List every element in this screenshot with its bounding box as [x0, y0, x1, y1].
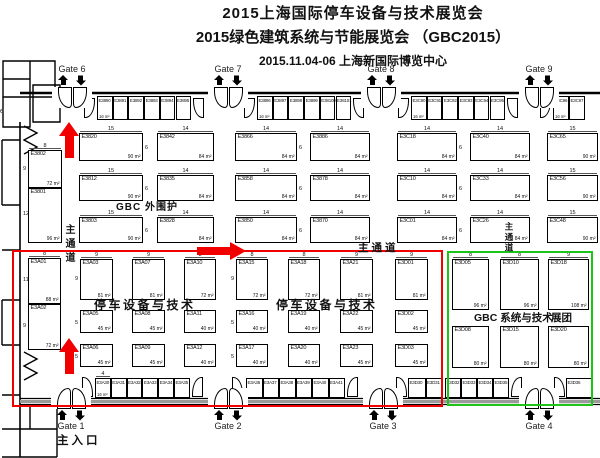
booth-id: E3893 [146, 98, 158, 103]
red-right-arrow-icon [197, 242, 246, 260]
edge-cutoff-text: e [0, 108, 4, 115]
booth-id: E3D33 [463, 380, 476, 385]
booth-E3803: E380390 m²156 [79, 217, 143, 243]
booth-E3D01: E3D0181 m²9 [395, 259, 428, 300]
booth-area: 45 m² [413, 326, 426, 332]
booth-id: E3894 [161, 98, 173, 103]
booth-id: E3898 [290, 98, 302, 103]
booth-E3886: E388684 m²14 [310, 133, 370, 161]
booth-area: 84 m² [442, 236, 455, 242]
booth-E3C94: E3C94 [474, 96, 490, 120]
booth-area: 80 m² [574, 361, 587, 367]
booth-dim-right: 6 [145, 228, 148, 234]
booth-area: 81 m² [413, 293, 426, 299]
booth-E3A31: E3A31 [111, 378, 127, 398]
gate-doors-icon [51, 388, 91, 409]
booth-id: E3D30 [410, 380, 423, 385]
booth-E3894: E3894 [160, 96, 176, 120]
booth-area: 45 m² [98, 326, 111, 332]
gate-doors-icon [208, 87, 248, 108]
booth-E3828: E382884 m²14 [157, 217, 214, 243]
booth-id: E3870 [313, 218, 328, 224]
booth-id: E3C40 [473, 134, 489, 140]
booth-area: 108 m² [571, 303, 587, 309]
booth-id: E3895 [177, 98, 189, 103]
booth-id: E3A32 [128, 380, 141, 385]
exhibition-title-line2: 2015绿色建筑系统与节能展览会 （GBC2015） [110, 26, 596, 47]
booth-area: 96 m² [47, 236, 60, 242]
gate-label: Gate 3 [351, 421, 415, 431]
booth-id: E3A17 [239, 345, 255, 351]
booth-id: E3C33 [473, 176, 489, 182]
booth-E3D15: E3D1580 m² [500, 326, 539, 368]
booth-E3A37: E3A37 [263, 378, 280, 398]
booth-E3D20: E3D2080 m² [548, 326, 589, 368]
gate-gate-1: Gate 1 [39, 387, 103, 431]
booth-area: 84 m² [282, 236, 295, 242]
booth-id: E3858 [238, 176, 253, 182]
gate-label: Gate 2 [196, 421, 260, 431]
booth-id: E3812 [82, 176, 97, 182]
booth-E3D32: E3D32 [445, 378, 461, 398]
booth-E3842: E384284 m²14 [157, 133, 214, 161]
booth-area: 84 m² [442, 154, 455, 160]
booth-E3C92: E3C92 [442, 96, 458, 120]
booth-id: E3D05 [455, 260, 471, 266]
booth-E3850: E385084 m²146 [235, 217, 297, 243]
booth-area: 84 m² [442, 194, 455, 200]
gate-gate-4: Gate 4 [507, 387, 571, 431]
gate-label: Gate 7 [196, 64, 260, 74]
booth-id: E3D31 [427, 380, 440, 385]
booth-area: 72 m² [253, 293, 266, 299]
booth-id: E3A30 [97, 380, 110, 385]
booth-dim-left: 5 [231, 320, 234, 326]
booth-E3D03: E3D0345 m² [395, 344, 428, 367]
gate-label: Gate 1 [39, 421, 103, 431]
down-arrow-icon [386, 410, 397, 421]
booth-E38100: E38100 [320, 96, 336, 120]
booth-E3D05: E3D0596 m²8 [452, 259, 489, 310]
booth-id: E3899 [306, 98, 318, 103]
booth-area: 45 m² [150, 360, 163, 366]
gate-gate-6: Gate 6 [40, 64, 104, 108]
booth-id: E3A07 [135, 260, 151, 266]
main-aisle-label-vertical: 主通道 [61, 224, 76, 266]
up-arrow-icon [214, 410, 225, 421]
booth-dim-left: 11 [23, 277, 29, 283]
booth-id: E3803 [82, 218, 97, 224]
booth-area: 88 m² [46, 297, 59, 303]
booth-area: 96 m² [474, 303, 487, 309]
booth-id: E3897 [274, 98, 286, 103]
down-arrow-icon [542, 75, 553, 86]
booth-area: 72 m² [201, 293, 214, 299]
booth-E3866: E386684 m²146 [235, 133, 297, 161]
booth-dim-left: 9 [75, 276, 78, 282]
booth-dim-left: 9 [23, 323, 26, 329]
booth-E3858: E385884 m²146 [235, 175, 297, 201]
down-arrow-icon [231, 410, 242, 421]
down-arrow-icon [74, 410, 85, 421]
booth-E3891: E3891 [113, 96, 129, 120]
booth-E3A39: E3A39 [296, 378, 313, 398]
booth-E3C65: E3C6590 m²15 [547, 133, 598, 161]
booth-id: E3896 [259, 98, 271, 103]
down-arrow-icon [384, 75, 395, 86]
booth-id: E3A21 [343, 260, 359, 266]
booth-E3C95: E3C95 [490, 96, 506, 120]
booth-id: E3866 [238, 134, 253, 140]
booth-E3801: E380196 m²12 [28, 188, 62, 243]
gate-in-out-arrows-icon [507, 75, 571, 86]
booth-E3C48: E3C4890 m²15 [547, 217, 598, 243]
gate-in-out-arrows-icon [351, 410, 415, 421]
booth-id: E3C91 [428, 98, 441, 103]
booth-E3899: E3899 [304, 96, 320, 120]
booth-E3A07: E3A0781 m²9 [132, 259, 165, 300]
up-arrow-icon [369, 410, 380, 421]
booth-E3A38: E3A38 [279, 378, 296, 398]
gate-label: Gate 4 [507, 421, 571, 431]
booth-id: E3A40 [314, 380, 327, 385]
booth-id: E3C10 [400, 176, 416, 182]
booth-id: E3D34 [479, 380, 492, 385]
stairs-icon [24, 352, 37, 380]
booth-area: 84 m² [515, 194, 528, 200]
booth-id: E3A38 [281, 380, 294, 385]
booth-area: 45 m² [98, 360, 111, 366]
booth-id: E3C01 [400, 218, 416, 224]
gbc-outer-wall-label: GBC 外围护 [116, 198, 178, 213]
booth-dim-right: 6 [459, 228, 462, 234]
booth-id: E3A12 [187, 345, 203, 351]
booth-area: 84 m² [199, 154, 212, 160]
booth-E3D33: E3D33 [461, 378, 477, 398]
gate-in-out-arrows-icon [39, 410, 103, 421]
gate-doors-icon [519, 388, 559, 409]
booth-area: 40 m² [201, 326, 214, 332]
booth-id: E38100 [321, 98, 335, 103]
booth-dim-right: 6 [299, 186, 302, 192]
gbc-system-zone-label: GBC 系统与技术 [474, 310, 553, 325]
booth-E3A41: E3A41 [329, 378, 346, 398]
booth-id: E3A01 [31, 259, 47, 265]
booth-E3C97: E3C97 [569, 96, 585, 120]
booth-id: E3D32 [447, 380, 460, 385]
booth-E3A22: E3A2245 m² [340, 310, 373, 333]
booth-E3A23: E3A2345 m² [340, 344, 373, 367]
booth-E3A32: E3A32 [127, 378, 143, 398]
booth-E3A16: E3A1640 m²5 [236, 310, 268, 333]
booth-area: 90 m² [128, 154, 141, 160]
booth-id: E3A02 [31, 305, 47, 311]
booth-id: E3850 [238, 218, 253, 224]
booth-area: 45 m² [358, 326, 371, 332]
booth-area: 84 m² [515, 154, 528, 160]
red-up-arrow-icon [59, 122, 79, 158]
booth-id: E3D08 [455, 327, 471, 333]
booth-area: 90 m² [583, 154, 596, 160]
gate-doors-icon [363, 388, 403, 409]
booth-area: 84 m² [515, 236, 528, 242]
gate-doors-icon [361, 87, 401, 108]
booth-id: E3A39 [297, 380, 310, 385]
booth-id: E3A34 [160, 380, 173, 385]
booth-E3A09: E3A0945 m² [132, 344, 165, 367]
booth-id: E3A35 [176, 380, 189, 385]
gate-in-out-arrows-icon [196, 410, 260, 421]
booth-id: E3C56 [550, 176, 566, 182]
booth-id: E3C95 [491, 98, 504, 103]
booth-E3820: E382090 m²156 [79, 133, 143, 161]
booth-dim-left: 5 [231, 354, 234, 360]
booth-E3A01: E3A0188 m²811 [28, 258, 61, 304]
gate-doors-icon [52, 87, 92, 108]
booth-id: E3892 [130, 98, 142, 103]
parking-zone-label-1: 停车设备与技术 [94, 296, 196, 313]
booth-id: E3835 [160, 176, 175, 182]
booth-area: 84 m² [282, 194, 295, 200]
booth-E3D08: E3D0880 m² [452, 326, 489, 368]
booth-E3A12: E3A1240 m² [184, 344, 216, 367]
booth-E3C01: E3C0184 m²146 [397, 217, 457, 243]
booth-area: 40 m² [253, 326, 266, 332]
gate-label: Gate 6 [40, 64, 104, 74]
booth-id: E3802 [31, 151, 46, 157]
booth-E3C26: E3C2684 m²14 [470, 217, 530, 243]
booth-E3C91: E3C91 [427, 96, 443, 120]
booth-id: E3D10 [503, 260, 519, 266]
booth-id: E3C97 [571, 98, 584, 103]
booth-E3893: E3893 [144, 96, 160, 120]
booth-area: 45 m² [358, 360, 371, 366]
booth-E3802: E380272 m²89 [28, 150, 62, 188]
gate-in-out-arrows-icon [196, 75, 260, 86]
booth-E3D10: E3D1096 m²8 [500, 259, 539, 310]
booth-area: 84 m² [199, 194, 212, 200]
booth-E3A02: E3A0272 m²9 [28, 304, 61, 350]
gate-gate-8: Gate 8 [349, 64, 413, 108]
booth-id: E3A10 [187, 260, 203, 266]
booth-E3A05: E3A0545 m²5 [80, 310, 113, 333]
booth-id: E3D03 [398, 345, 414, 351]
gate-gate-3: Gate 3 [351, 387, 415, 431]
booth-id: E3C92 [444, 98, 457, 103]
gate-gate-9: Gate 9 [507, 64, 571, 108]
booth-E3C33: E3C3384 m²14 [470, 175, 530, 201]
booth-id: E3A03 [83, 260, 99, 266]
booth-dim-right: 6 [299, 228, 302, 234]
booth-id: E3A16 [239, 311, 255, 317]
booth-E3A34: E3A34 [158, 378, 174, 398]
booth-E3C56: E3C5690 m²15 [547, 175, 598, 201]
booth-id: E3891 [114, 98, 126, 103]
booth-id: E3878 [313, 176, 328, 182]
booth-E3D02: E3D0245 m² [395, 310, 428, 333]
booth-id: E3C18 [400, 134, 416, 140]
booth-id: E3D36 [568, 380, 581, 385]
exhibition-group-label: 展团 [551, 310, 572, 325]
booth-dim-right: 6 [299, 145, 302, 151]
main-aisle-label-vertical-2: 主通道 [503, 222, 515, 254]
booth-E3D18: E3D18108 m²9 [548, 259, 589, 310]
booth-E3C90: E3C9016 m² [411, 96, 427, 120]
up-arrow-icon [57, 410, 68, 421]
down-arrow-icon [231, 75, 242, 86]
booth-id: E3D35 [495, 380, 508, 385]
booth-E3A08: E3A0845 m² [132, 310, 165, 333]
booth-id: E3A37 [264, 380, 277, 385]
booth-dim-right: 6 [145, 186, 148, 192]
gate-label: Gate 8 [349, 64, 413, 74]
down-arrow-icon [75, 75, 86, 86]
main-aisle-label-horizontal: 主通道 [358, 240, 399, 255]
booth-area: 40 m² [201, 360, 214, 366]
booth-dim-right: 6 [459, 186, 462, 192]
booth-area: 72 m² [47, 181, 60, 187]
exhibition-floor-plan: 2015上海国际停车设备与技术展览会 2015绿色建筑系统与节能展览会 （GBC… [0, 0, 600, 458]
red-up-arrow-icon [59, 338, 79, 374]
booth-dim-right: 6 [145, 145, 148, 151]
booth-E3A33: E3A33 [142, 378, 158, 398]
parking-zone-label-2: 停车设备与技术 [276, 296, 378, 313]
booth-id: E3C90 [413, 98, 426, 103]
booth-id: E3C26 [473, 218, 489, 224]
main-entrance-label: 主入口 [57, 432, 101, 448]
booth-id: E3C48 [550, 218, 566, 224]
booth-E3A21: E3A2181 m²9 [340, 259, 373, 300]
booth-area: 40 m² [305, 360, 318, 366]
booth-area: 16 m² [259, 114, 270, 119]
booth-E3898: E3898 [288, 96, 304, 120]
booth-E3C93: E3C93 [458, 96, 474, 120]
booth-area: 90 m² [583, 236, 596, 242]
booth-area: 45 m² [150, 326, 163, 332]
booth-area: 45 m² [413, 360, 426, 366]
up-arrow-icon [367, 75, 378, 86]
booth-E3897: E3897 [273, 96, 289, 120]
booth-E3892: E3892 [128, 96, 144, 120]
booth-area: 72 m² [46, 343, 59, 349]
gate-doors-icon [208, 388, 248, 409]
booth-E3A35: E3A35 [174, 378, 190, 398]
booth-area: 90 m² [583, 194, 596, 200]
booth-E3A11: E3A1140 m² [184, 310, 216, 333]
booth-id: E3A18 [291, 260, 307, 266]
gate-in-out-arrows-icon [507, 410, 571, 421]
up-arrow-icon [525, 75, 536, 86]
booth-id: E3A15 [239, 260, 255, 266]
booth-E3A18: E3A1872 m²8 [288, 259, 320, 300]
booth-area: 16 m² [413, 114, 424, 119]
booth-area: 90 m² [128, 236, 141, 242]
booth-E3895: E3895 [176, 96, 192, 120]
booth-area: 96 m² [524, 303, 537, 309]
booth-id: E3D01 [398, 260, 414, 266]
gate-label: Gate 9 [507, 64, 571, 74]
booth-dim-left: 9 [231, 276, 234, 282]
booth-E3A03: E3A0381 m²99 [80, 259, 113, 300]
gate-doors-icon [519, 87, 559, 108]
down-arrow-icon [542, 410, 553, 421]
booth-E3A15: E3A1572 m²89 [236, 259, 268, 300]
booth-E3C18: E3C1884 m²146 [397, 133, 457, 161]
up-arrow-icon [58, 75, 69, 86]
gate-in-out-arrows-icon [40, 75, 104, 86]
booth-id: E3A31 [112, 380, 125, 385]
booth-area: 84 m² [282, 154, 295, 160]
booth-E3A10: E3A1072 m²8 [184, 259, 216, 300]
booth-dim-right: 6 [459, 145, 462, 151]
booth-E3D31: E3D31 [426, 378, 444, 398]
booth-area: 80 m² [524, 361, 537, 367]
booth-id: E3A41 [330, 380, 343, 385]
gate-gate-2: Gate 2 [196, 387, 260, 431]
booth-E3A40: E3A40 [312, 378, 329, 398]
booth-id: E3828 [160, 218, 175, 224]
booth-id: E3C94 [475, 98, 488, 103]
booth-dim-left: 5 [75, 320, 78, 326]
booth-area: 84 m² [355, 194, 368, 200]
booth-id: E3C65 [550, 134, 566, 140]
booth-area: 16 m² [555, 114, 566, 119]
booth-id: E3801 [31, 189, 46, 195]
up-arrow-icon [525, 410, 536, 421]
title-block: 2015上海国际停车设备与技术展览会 2015绿色建筑系统与节能展览会 （GBC… [110, 2, 596, 69]
booth-id: E3A09 [135, 345, 151, 351]
booth-id: E3D02 [398, 311, 414, 317]
up-arrow-icon [214, 75, 225, 86]
booth-id: E3A23 [343, 345, 359, 351]
booth-E3878: E387884 m²14 [310, 175, 370, 201]
booth-id: E3D20 [551, 327, 567, 333]
booth-E3A17: E3A1740 m²5 [236, 344, 268, 367]
booth-E3D34: E3D34 [477, 378, 493, 398]
booth-E3A06: E3A0645 m²5 [80, 344, 113, 367]
booth-id: E3A36 [248, 380, 261, 385]
exhibition-title-line1: 2015上海国际停车设备与技术展览会 [110, 2, 596, 23]
booth-id: E3D18 [551, 260, 567, 266]
booth-id: E3886 [313, 134, 328, 140]
booth-id: E3842 [160, 134, 175, 140]
booth-area: 84 m² [355, 154, 368, 160]
booth-area: 80 m² [474, 361, 487, 367]
gate-in-out-arrows-icon [349, 75, 413, 86]
booth-id: E3820 [82, 134, 97, 140]
booth-id: E3C93 [460, 98, 473, 103]
booth-E3A20: E3A2040 m² [288, 344, 320, 367]
booth-area: 40 m² [253, 360, 266, 366]
booth-E3A19: E3A1940 m² [288, 310, 320, 333]
booth-id: E3A33 [144, 380, 157, 385]
booth-dim-left: 9 [23, 166, 26, 172]
gate-gate-7: Gate 7 [196, 64, 260, 108]
booth-id: E3D15 [503, 327, 519, 333]
booth-dim-left: 12 [23, 211, 29, 217]
booth-E3C10: E3C1084 m²146 [397, 175, 457, 201]
booth-E3C40: E3C4084 m²14 [470, 133, 530, 161]
booth-area: 40 m² [305, 326, 318, 332]
booth-id: E3A20 [291, 345, 307, 351]
booth-id: E3A06 [83, 345, 99, 351]
booth-area: 16 m² [99, 114, 110, 119]
